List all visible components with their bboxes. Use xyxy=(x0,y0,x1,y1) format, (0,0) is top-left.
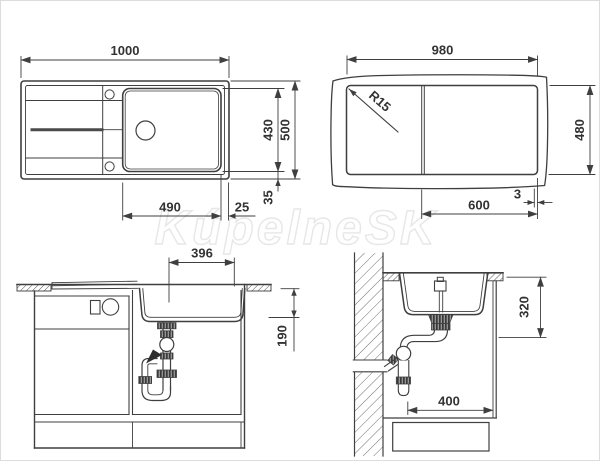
sink-dimension-drawing: KúpelneSK 1000 xyxy=(1,1,600,461)
dim-rim-offset-label: 35 xyxy=(261,190,276,204)
front-view: 396 190 xyxy=(17,246,299,449)
pipe-nut-1 xyxy=(161,331,174,338)
dim-overall-width-label: 1000 xyxy=(111,43,140,58)
plan-view: 1000 430 500 35 xyxy=(21,43,300,220)
bowl-front-outer xyxy=(140,289,245,322)
dim-bowl-front-width-label: 396 xyxy=(191,246,213,261)
bowl-outline xyxy=(123,89,221,172)
dim-cutout-width-label: 980 xyxy=(432,43,454,58)
pipe-nut-3 xyxy=(157,370,177,378)
pipe-nut-2 xyxy=(161,353,174,359)
tap-hole-top xyxy=(105,90,114,99)
worktop-hatch-left xyxy=(17,285,51,292)
tap-hole-bottom xyxy=(105,162,114,171)
worktop-side-hatch-left xyxy=(383,273,399,281)
worktop-hatch-right xyxy=(247,285,271,292)
worktop-blob-outline xyxy=(331,75,548,189)
siphon-side xyxy=(385,330,448,396)
dim-overall-width xyxy=(21,57,229,78)
wall-pipe-opening xyxy=(353,360,384,372)
bowl-inner-line xyxy=(125,91,218,169)
trap-nut xyxy=(139,377,152,384)
drain-nut xyxy=(158,323,177,329)
strainer-nut xyxy=(432,324,451,331)
dim-right-section-label: 600 xyxy=(468,198,490,213)
wall-hatch xyxy=(355,253,384,456)
strainer-body xyxy=(429,315,454,324)
drain-remote-knob xyxy=(435,281,447,291)
drainboard-profile-1 xyxy=(52,281,137,283)
elbow-outer xyxy=(407,330,448,352)
bowl-front-inner xyxy=(143,289,243,318)
dim-bowl-width-label: 490 xyxy=(159,200,181,215)
dim-corner-radius-label: R15 xyxy=(366,88,394,115)
cabinet-front xyxy=(35,285,245,449)
siphon-front xyxy=(139,322,177,401)
worktop-side-hatch-right xyxy=(487,273,503,281)
trap-cup-nut xyxy=(396,377,410,384)
ball-joint xyxy=(160,338,174,352)
appliance-switch xyxy=(91,301,101,315)
drainboard-profile-3 xyxy=(52,288,138,289)
cutout-view: R15 980 480 xyxy=(331,43,595,219)
dim-edge-gap-label: 3 xyxy=(514,187,521,202)
flow-arrow-icon xyxy=(146,350,162,364)
dim-cabinet-depth-label: 400 xyxy=(438,394,460,409)
dim-cutout-height-label: 480 xyxy=(572,119,587,141)
dim-mounting-depth-label: 320 xyxy=(517,296,532,318)
dim-cutout-width xyxy=(347,56,538,76)
appliance-knob xyxy=(102,299,118,315)
technical-drawing-sheet: KúpelneSK 1000 xyxy=(0,0,600,461)
dim-bowl-front-width xyxy=(169,258,234,302)
drain-hole xyxy=(136,121,155,140)
dim-bowl-front-depth-label: 190 xyxy=(275,325,290,347)
dim-bowl-depth-label: 430 xyxy=(261,119,276,141)
side-view: 320 400 xyxy=(353,253,546,456)
dim-overall-depth-label: 500 xyxy=(278,119,293,141)
dim-bowl-right-offset-label: 25 xyxy=(235,200,249,215)
plinth-box xyxy=(393,423,489,452)
